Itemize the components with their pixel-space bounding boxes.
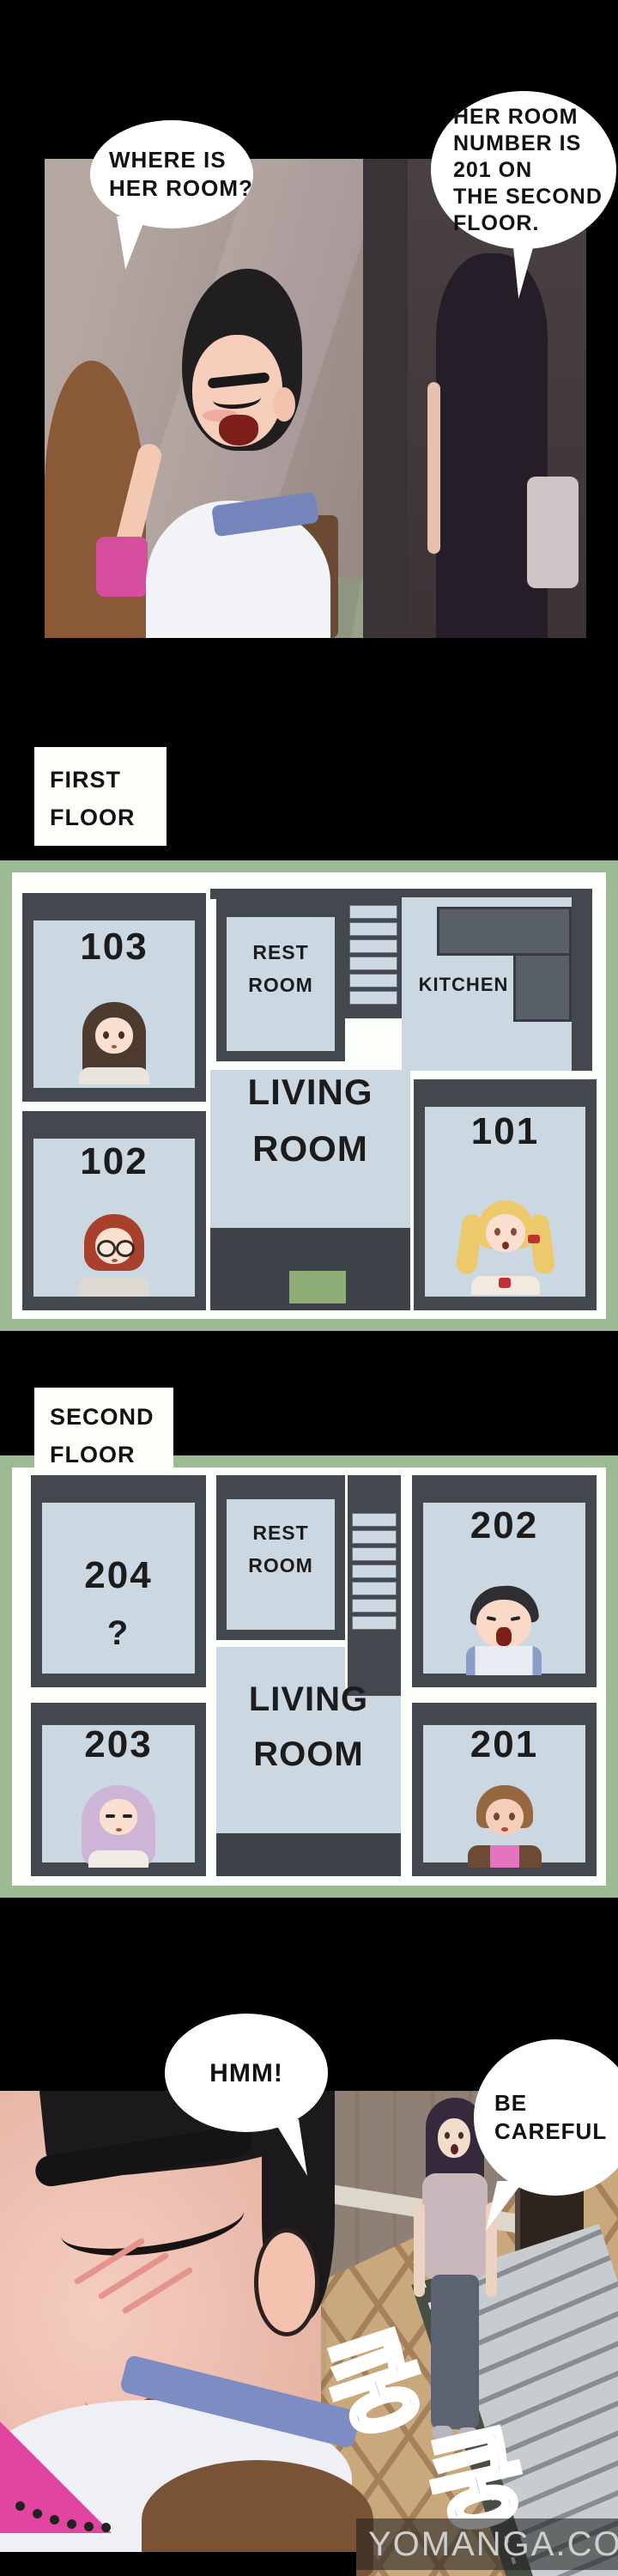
stair-step — [352, 1547, 397, 1561]
floor-plan-second: 204 ? REST ROOM 202 — [0, 1455, 618, 1898]
rest-room-label: REST — [216, 1522, 345, 1545]
tenant-102-portrait — [67, 1214, 161, 1297]
doorway-dark — [363, 159, 408, 638]
room-202: 202 — [412, 1475, 597, 1687]
bubble-line: THE SECOND — [453, 184, 616, 210]
bubble-line: HER ROOM — [453, 104, 616, 131]
second-floor-label: SECOND FLOOR — [34, 1388, 173, 1469]
comic-page: WHERE IS HER ROOM? HER ROOM NUMBER IS 20… — [0, 0, 618, 2576]
standing-woman-mouth — [451, 2144, 458, 2154]
tenant-203-torso — [88, 1850, 148, 1868]
tenant-102-mouth — [112, 1259, 118, 1262]
room-203: 203 — [31, 1703, 206, 1876]
room-103: 103 — [22, 893, 206, 1102]
floor-plan-first: KITCHEN LIVING ROOM 103 102 — [0, 860, 618, 1331]
room-203-number: 203 — [31, 1723, 206, 1766]
tenant-201-mouth — [501, 1827, 508, 1832]
stair-step — [352, 1530, 397, 1544]
standing-woman-top — [422, 2173, 488, 2280]
tenant-203-eye-closed — [106, 1814, 115, 1818]
kitchen-label: KITCHEN — [403, 974, 524, 996]
standing-woman-eye — [458, 2132, 463, 2139]
tenant-203-portrait — [71, 1785, 166, 1868]
room-204: 204 ? — [31, 1475, 206, 1687]
tenant-102-glasses — [116, 1240, 135, 1257]
entrance-area — [216, 1833, 401, 1876]
bubble-line: 201 ON — [453, 157, 616, 184]
tenant-203-mouth — [116, 1828, 122, 1832]
speech-bubble-where: WHERE IS HER ROOM? — [90, 120, 253, 228]
room-204-number: 204 — [31, 1554, 206, 1597]
woman-dark-arm — [427, 382, 440, 554]
tenant-103-eye — [103, 1031, 109, 1039]
stair-step — [349, 974, 397, 987]
rest-room-label: ROOM — [216, 1554, 345, 1577]
woman-dark-top — [527, 477, 579, 588]
living-room-label: ROOM — [216, 1735, 401, 1774]
rest-room-second: REST ROOM — [216, 1475, 345, 1640]
tenant-201-portrait — [457, 1785, 552, 1868]
entrance-mat — [289, 1271, 346, 1303]
staircase-first — [345, 893, 402, 1018]
stair-step — [352, 1582, 397, 1595]
standing-woman-arm — [414, 2202, 425, 2297]
room-201-number: 201 — [412, 1723, 597, 1766]
tenant-101-eye — [494, 1228, 500, 1236]
bubble-line: FLOOR. — [453, 210, 616, 237]
label-line: FIRST — [50, 761, 167, 799]
tenant-202-portrait — [457, 1586, 552, 1675]
man-mouth — [219, 415, 258, 446]
tenant-102-torso — [79, 1278, 149, 1297]
bubble-line: HER ROOM? — [109, 174, 253, 203]
tenant-101-bow — [528, 1235, 540, 1243]
tenant-202-torso — [466, 1646, 542, 1675]
bubble-line: HMM! — [165, 2059, 328, 2087]
bead-necklace — [15, 2501, 25, 2511]
tenant-101-ribbon — [499, 1278, 511, 1288]
man-ear — [273, 387, 295, 422]
watermark-text: YOMANGA.CO — [368, 2525, 618, 2564]
tenant-101-eye — [511, 1228, 517, 1236]
rest-room-label: ROOM — [216, 974, 345, 997]
room-201: 201 — [412, 1703, 597, 1876]
room-101-number: 101 — [414, 1110, 597, 1153]
watermark-bar: YOMANGA.CO YOMANGA — [356, 2518, 618, 2570]
living-room-label: LIVING — [216, 1680, 401, 1719]
speech-bubble-hmm: HMM! — [165, 2014, 328, 2132]
stair-step — [349, 991, 397, 1005]
tenant-201-eye — [494, 1813, 500, 1820]
label-line: SECOND — [50, 1398, 173, 1436]
tenant-102-glasses — [97, 1240, 116, 1257]
stair-step — [349, 957, 397, 970]
stair-step — [352, 1564, 397, 1578]
outer-wall-right — [572, 889, 592, 1071]
tenant-202-mouth — [496, 1627, 512, 1646]
living-room-label: LIVING — [210, 1072, 410, 1113]
tenant-201-eye — [509, 1813, 515, 1820]
stair-step — [352, 1513, 397, 1527]
tenant-101-mouth — [502, 1242, 509, 1249]
living-room-label: ROOM — [210, 1128, 410, 1170]
tenant-203-eye-closed — [123, 1814, 132, 1818]
stair-step — [349, 922, 397, 936]
label-line: FLOOR — [50, 799, 167, 836]
entrance-area — [210, 1228, 410, 1310]
bottom-black-strip — [0, 2552, 356, 2576]
rest-room-label: REST — [216, 941, 345, 964]
room-102: 102 — [22, 1111, 206, 1310]
tenant-103-portrait — [67, 1002, 161, 1084]
room-101: 101 — [414, 1079, 597, 1310]
room-102-number: 102 — [22, 1140, 206, 1183]
room-202-number: 202 — [412, 1504, 597, 1547]
woman-pink-top — [96, 537, 148, 597]
rest-room-first: REST ROOM — [216, 893, 345, 1061]
label-line: FLOOR — [50, 1436, 173, 1473]
room-204-question-mark: ? — [31, 1614, 206, 1653]
tenant-201-jacket — [468, 1845, 542, 1868]
stair-step — [352, 1616, 397, 1630]
bubble-line: NUMBER IS — [453, 131, 616, 157]
standing-woman-eye — [445, 2132, 450, 2139]
stair-step — [352, 1599, 397, 1613]
first-floor-label: FIRST FLOOR — [34, 747, 167, 846]
tenant-103-torso — [79, 1067, 149, 1084]
bubble-line: WHERE IS — [109, 146, 253, 174]
tenant-103-mouth — [112, 1045, 117, 1048]
stair-step — [349, 905, 397, 919]
kitchen-counter-top — [437, 907, 572, 956]
tenant-101-portrait — [454, 1200, 557, 1295]
bubble-line: CAREFUL — [494, 2117, 618, 2146]
room-103-number: 103 — [22, 926, 206, 969]
stair-step — [349, 939, 397, 953]
bubble-line: BE — [494, 2089, 618, 2117]
tenant-103-eye — [118, 1031, 124, 1039]
speech-bubble-room-201: HER ROOM NUMBER IS 201 ON THE SECOND FLO… — [431, 91, 616, 249]
